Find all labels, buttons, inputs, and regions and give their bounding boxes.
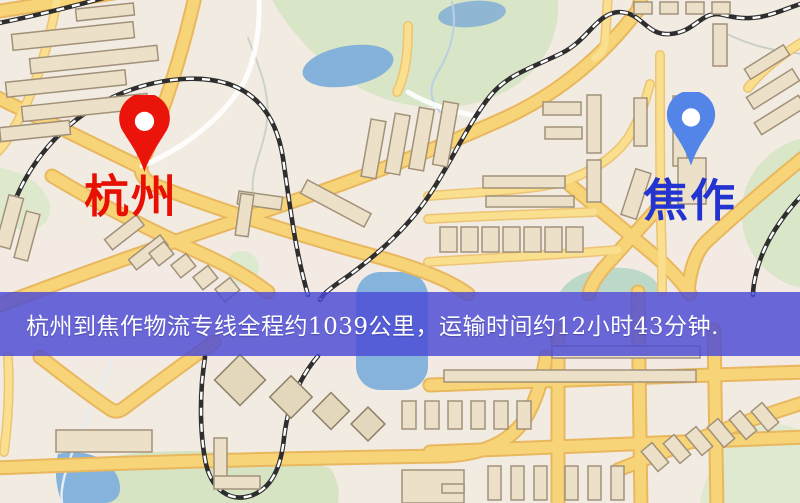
destination-city-label: 焦作 <box>643 178 737 223</box>
route-info-text: 杭州到焦作物流专线全程约1039公里，运输时间约12小时43分钟. <box>26 307 719 341</box>
origin-pin-icon <box>116 95 173 174</box>
origin-city-label: 杭州 <box>84 174 178 219</box>
map-screenshot: 杭州 焦作 杭州到焦作物流专线全程约1039公里，运输时间约12小时43分钟. <box>0 0 800 503</box>
map-canvas <box>0 0 800 503</box>
destination-pin-icon <box>664 92 718 168</box>
route-info-banner: 杭州到焦作物流专线全程约1039公里，运输时间约12小时43分钟. <box>0 292 800 356</box>
